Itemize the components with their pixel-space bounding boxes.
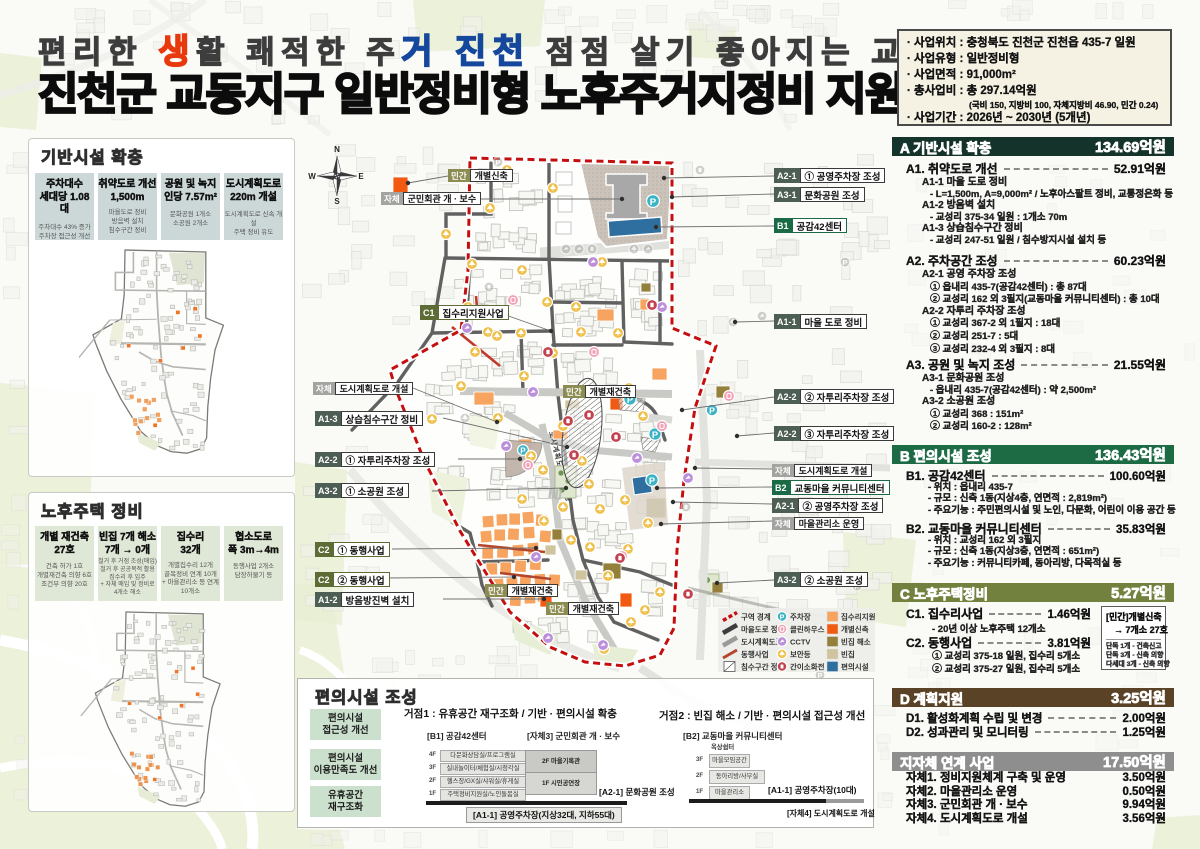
svg-text:편의시설: 편의시설 (841, 662, 869, 672)
svg-text:CCTV: CCTV (790, 638, 810, 647)
svg-text:P: P (652, 430, 658, 440)
svg-text:N: N (334, 145, 340, 154)
svg-text:P: P (709, 406, 715, 416)
svg-text:도시계획도로: 도시계획도로 (741, 637, 782, 647)
svg-text:개별신축: 개별신축 (841, 624, 869, 634)
svg-text:P: P (780, 612, 785, 621)
svg-text:P: P (842, 258, 847, 267)
svg-text:보안등: 보안등 (790, 649, 811, 659)
svg-text:P: P (495, 158, 500, 167)
svg-text:E: E (358, 172, 364, 181)
svg-text:집수리지원: 집수리지원 (841, 612, 876, 622)
svg-text:P: P (650, 197, 657, 208)
svg-text:빈집 해소: 빈집 해소 (841, 637, 871, 647)
svg-text:간이소화전: 간이소화전 (790, 662, 825, 672)
svg-text:P: P (649, 476, 655, 486)
svg-text:S: S (334, 197, 340, 206)
svg-text:구역 경계: 구역 경계 (741, 612, 771, 622)
svg-text:빈집: 빈집 (841, 649, 855, 659)
svg-text:동행사업: 동행사업 (741, 649, 769, 659)
svg-text:주차장: 주차장 (790, 612, 811, 622)
svg-text:클린하우스: 클린하우스 (790, 624, 825, 634)
svg-text:W: W (308, 172, 316, 181)
